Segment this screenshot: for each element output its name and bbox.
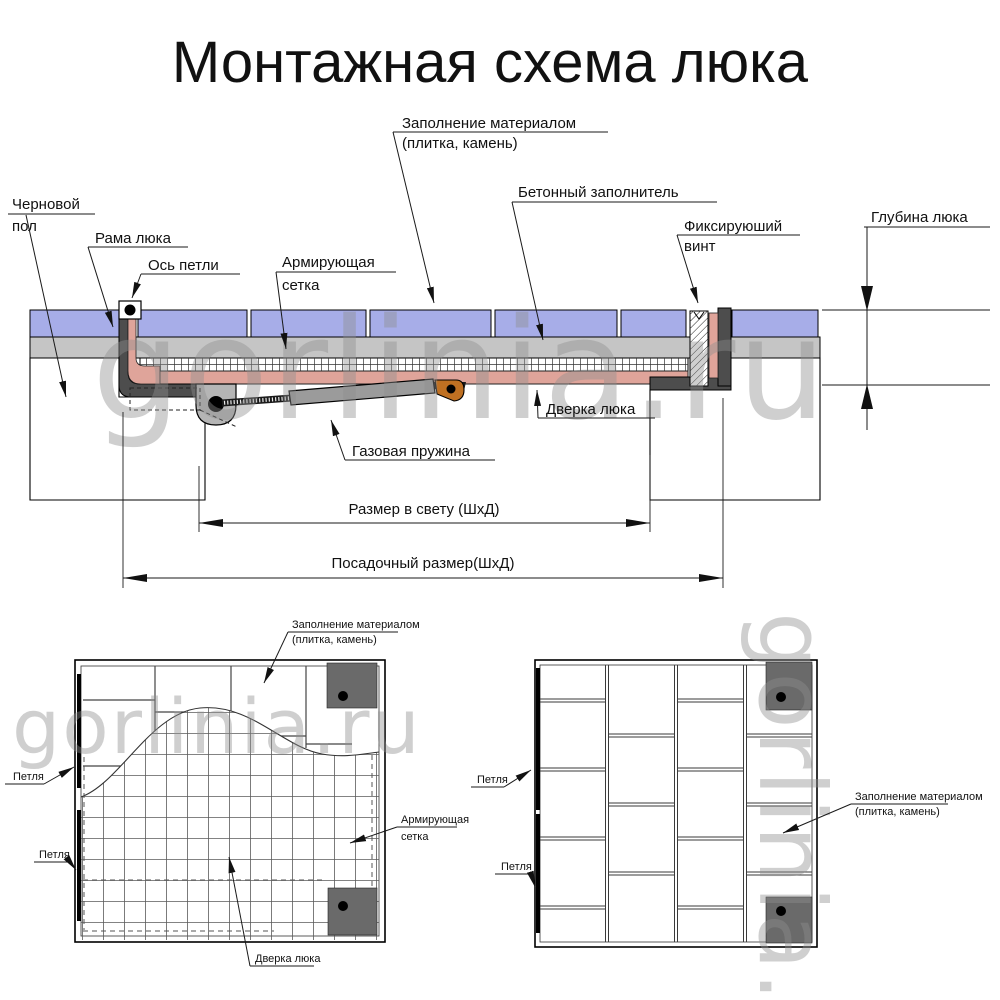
callout-text: (плитка, камень) <box>292 634 377 646</box>
callout-text: сетка <box>401 831 429 843</box>
leader-line <box>504 770 531 787</box>
callout-text: Заполнение материалом <box>292 619 420 631</box>
hatch-installation-diagram: Монтажная схема люка <box>0 0 1000 1000</box>
diagram-canvas: Монтажная схема люка <box>0 0 1000 1000</box>
callout-text: Черновой <box>12 196 80 213</box>
callout-text: сетка <box>282 277 320 294</box>
callout-text: Армирующая <box>282 254 375 271</box>
corner-block <box>328 888 377 935</box>
leader-line <box>26 215 66 397</box>
dimension-arrow <box>861 384 873 409</box>
callout-text: Бетонный заполнитель <box>518 184 679 201</box>
callout-text: Ось петли <box>148 257 219 274</box>
hinge-bar <box>536 668 540 810</box>
callout-hinge-bottom: Петля <box>495 861 535 887</box>
callout-text: пол <box>12 218 37 235</box>
dimension-depth: Глубина люка <box>822 209 990 430</box>
callout-text: Петля <box>477 774 508 786</box>
watermark-plan-right: gorlinia.ru <box>738 612 845 1000</box>
callout-text: Газовая пружина <box>352 443 471 460</box>
callout-text: Петля <box>501 861 532 873</box>
callout-hinge-bottom: Петля <box>34 849 76 870</box>
callout-text: Заполнение материалом <box>402 115 576 132</box>
hinge-bar <box>77 810 81 921</box>
callout-text: Армирующая <box>401 814 469 826</box>
dimension-text: Посадочный размер(ШхД) <box>332 555 515 572</box>
dimension-arrow <box>861 286 873 311</box>
callout-text: винт <box>684 238 716 255</box>
callout-text: (плитка, камень) <box>855 806 940 818</box>
callout-text: Рама люка <box>95 230 172 247</box>
page-title: Монтажная схема люка <box>172 30 809 95</box>
watermark-main: gorlinia.ru <box>92 289 828 452</box>
callout-text: Фиксируюший <box>684 218 782 235</box>
callout-text: Дверка люка <box>546 401 636 418</box>
callout-hinge-top: Петля <box>471 770 531 787</box>
callout-fill-material: Заполнение материалом (плитка, камень) <box>393 115 608 303</box>
callout-subfloor: Черновой пол <box>8 196 95 397</box>
watermark-plan-left: gorlinia.ru <box>12 682 422 771</box>
callout-text: Дверка люка <box>255 953 321 965</box>
dimension-clear-size: Размер в свету (ШхД) <box>199 455 650 532</box>
corner-block-pin <box>338 901 348 911</box>
callout-text: Петля <box>13 771 44 783</box>
callout-text: (плитка, камень) <box>402 135 518 152</box>
hinge-bar <box>536 814 540 933</box>
leader-line <box>393 132 434 303</box>
dimension-text: Размер в свету (ШхД) <box>348 501 499 518</box>
callout-text: Петля <box>39 849 70 861</box>
dimension-text: Глубина люка <box>871 209 968 226</box>
callout-text: Заполнение материалом <box>855 791 983 803</box>
